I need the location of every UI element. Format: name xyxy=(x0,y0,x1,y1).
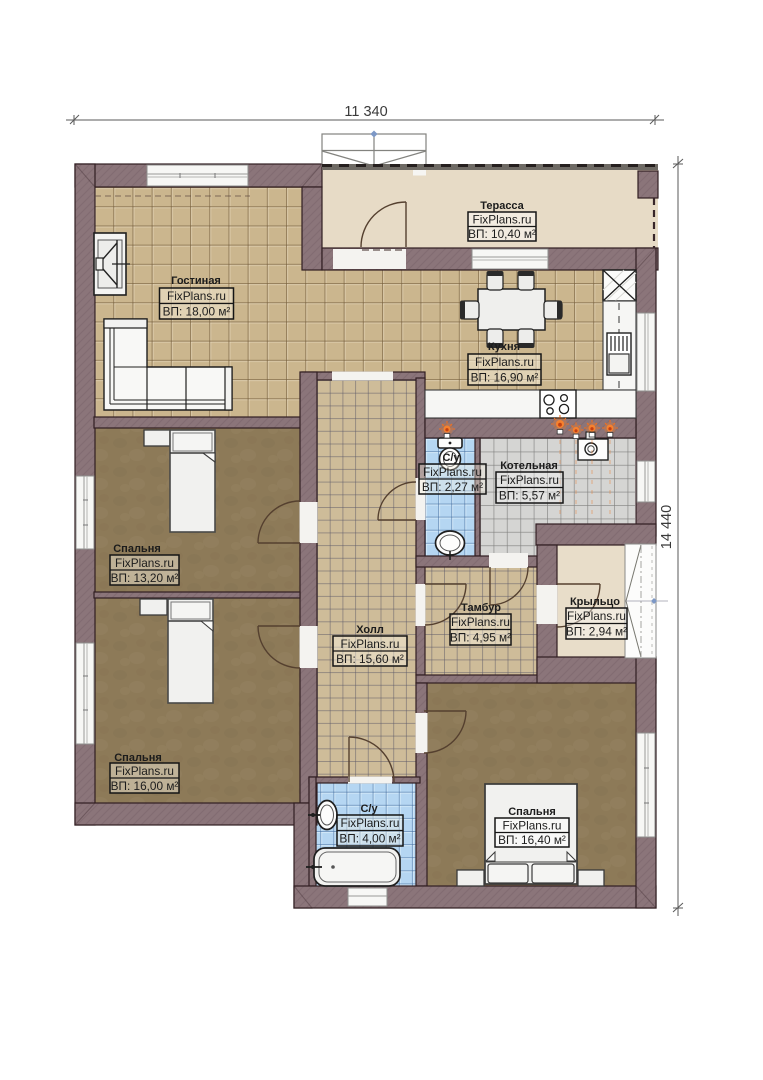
svg-text:FixPlans.ru: FixPlans.ru xyxy=(502,819,561,833)
svg-text:Котельная: Котельная xyxy=(500,460,558,472)
svg-text:ВП: 2,27 м²: ВП: 2,27 м² xyxy=(422,480,483,494)
svg-text:14 440: 14 440 xyxy=(659,505,675,549)
svg-text:ВП: 4,00 м²: ВП: 4,00 м² xyxy=(339,832,400,846)
svg-text:FixPlans.ru: FixPlans.ru xyxy=(340,637,399,651)
svg-text:FixPlans.ru: FixPlans.ru xyxy=(472,213,531,227)
svg-text:FixPlans.ru: FixPlans.ru xyxy=(340,816,399,830)
svg-text:ВП: 16,90 м²: ВП: 16,90 м² xyxy=(471,371,539,385)
svg-text:Холл: Холл xyxy=(356,624,384,636)
svg-text:FixPlans.ru: FixPlans.ru xyxy=(451,615,510,629)
svg-text:ВП: 16,40 м²: ВП: 16,40 м² xyxy=(498,833,566,847)
svg-text:FixPlans.ru: FixPlans.ru xyxy=(423,465,482,479)
svg-text:FixPlans.ru: FixPlans.ru xyxy=(475,355,534,369)
svg-text:11 340: 11 340 xyxy=(344,104,387,120)
svg-text:FixPlans.ru: FixPlans.ru xyxy=(567,609,626,623)
svg-text:ВП: 5,57 м²: ВП: 5,57 м² xyxy=(499,489,560,503)
svg-text:ВП: 16,00 м²: ВП: 16,00 м² xyxy=(111,779,179,793)
svg-text:ВП: 15,60 м²: ВП: 15,60 м² xyxy=(336,652,404,666)
svg-text:Спальня: Спальня xyxy=(113,543,161,555)
svg-text:ВП: 2,94 м²: ВП: 2,94 м² xyxy=(566,625,627,639)
svg-text:Спальня: Спальня xyxy=(114,752,162,764)
svg-text:Крыльцо: Крыльцо xyxy=(570,596,620,608)
svg-text:FixPlans.ru: FixPlans.ru xyxy=(167,289,226,303)
svg-text:ВП: 4,95 м²: ВП: 4,95 м² xyxy=(450,631,511,645)
svg-text:Спальня: Спальня xyxy=(508,806,556,818)
svg-text:С/у: С/у xyxy=(442,452,460,464)
svg-text:Терасса: Терасса xyxy=(480,200,524,212)
svg-text:ВП: 18,00 м²: ВП: 18,00 м² xyxy=(163,305,231,319)
svg-text:Гостиная: Гостиная xyxy=(171,275,221,287)
svg-text:Тамбур: Тамбур xyxy=(461,602,501,614)
svg-text:С/у: С/у xyxy=(360,803,378,815)
svg-text:FixPlans.ru: FixPlans.ru xyxy=(115,556,174,570)
svg-text:ВП: 10,40 м²: ВП: 10,40 м² xyxy=(468,227,536,241)
svg-text:FixPlans.ru: FixPlans.ru xyxy=(500,473,559,487)
svg-text:FixPlans.ru: FixPlans.ru xyxy=(115,764,174,778)
svg-text:ВП: 13,20 м²: ВП: 13,20 м² xyxy=(111,571,179,585)
svg-text:Кухня: Кухня xyxy=(488,341,520,353)
